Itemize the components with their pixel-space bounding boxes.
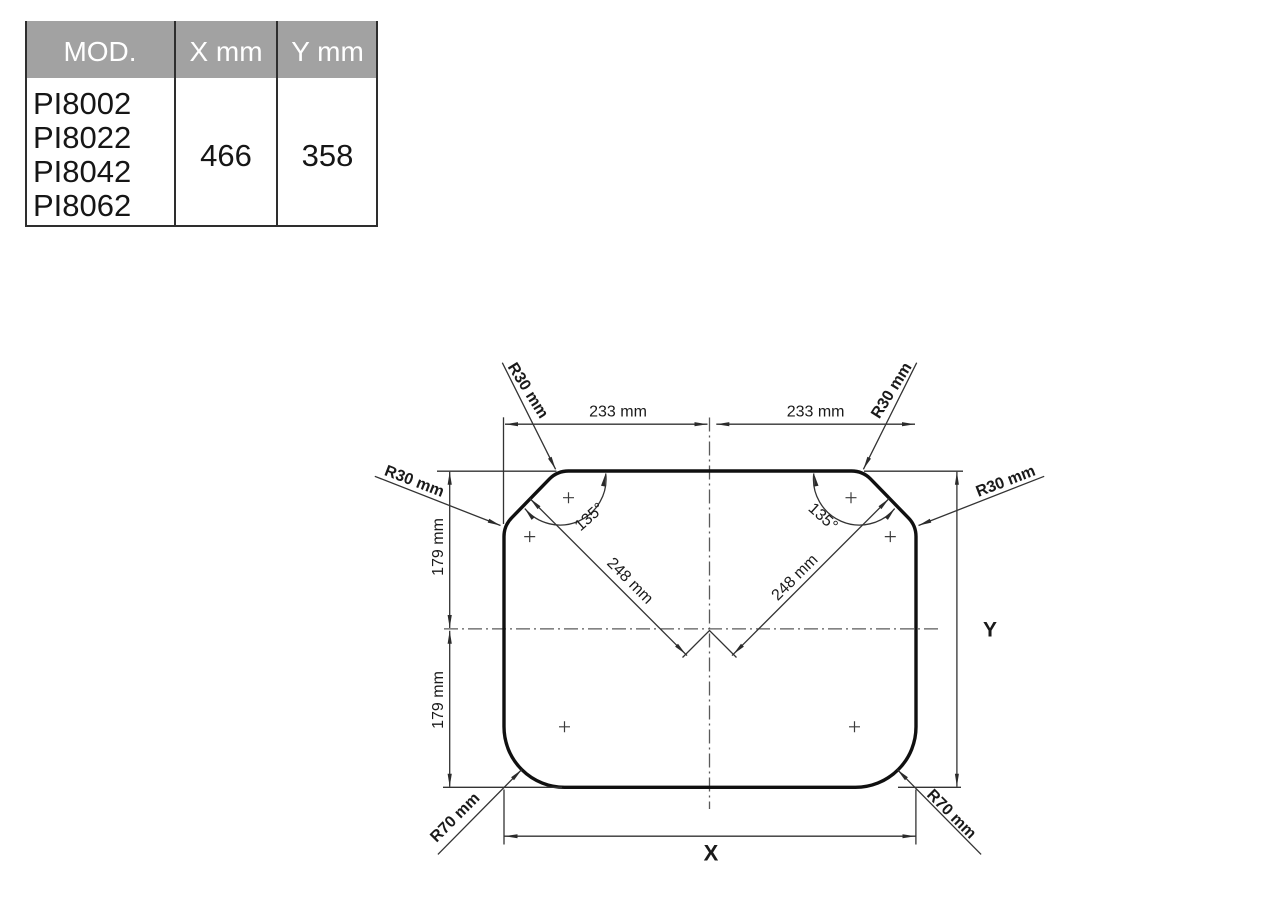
- svg-text:135°: 135°: [805, 500, 841, 535]
- svg-text:179 mm: 179 mm: [430, 671, 447, 729]
- svg-text:233 mm: 233 mm: [787, 404, 845, 421]
- svg-text:179 mm: 179 mm: [430, 518, 447, 576]
- svg-text:R30 mm: R30 mm: [974, 463, 1038, 501]
- svg-text:248 mm: 248 mm: [769, 551, 822, 604]
- svg-text:R70 mm: R70 mm: [923, 786, 979, 842]
- svg-text:233 mm: 233 mm: [589, 404, 647, 421]
- svg-text:Y: Y: [983, 619, 997, 642]
- svg-text:135°: 135°: [572, 500, 608, 535]
- svg-text:R30 mm: R30 mm: [382, 463, 446, 501]
- svg-text:X: X: [704, 841, 719, 866]
- svg-text:248 mm: 248 mm: [603, 555, 656, 608]
